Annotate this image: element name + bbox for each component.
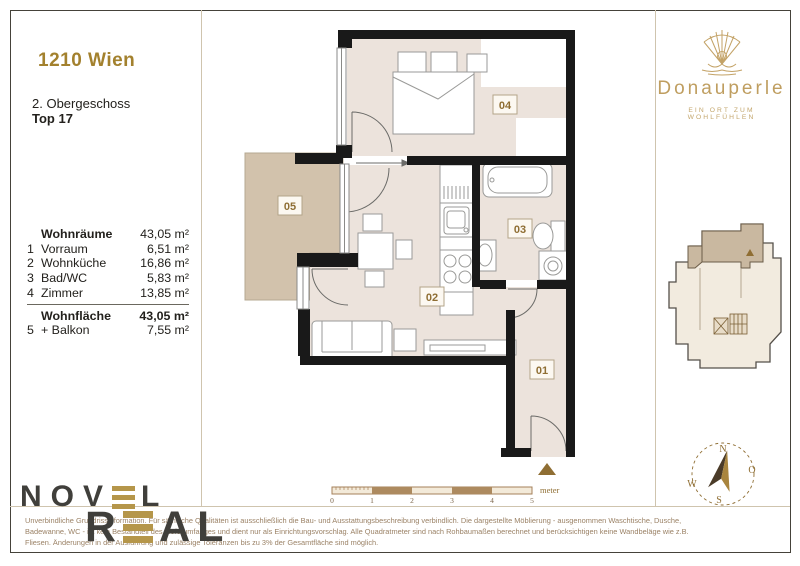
compass: N O S W — [685, 438, 765, 508]
floor-label: 2. Obergeschoss — [32, 96, 130, 111]
bed — [393, 72, 474, 134]
compass-west: W — [687, 479, 697, 490]
scale-unit-label: meter — [540, 485, 560, 495]
brand-tagline: EIN ORT ZUM WOHLFÜHLEN — [653, 107, 790, 121]
table-row: 1 Vorraum 6,51 m² — [27, 242, 189, 257]
table-row: 3 Bad/WC 5,83 m² — [27, 271, 189, 286]
site-plan — [662, 215, 788, 375]
dining-table — [358, 233, 393, 269]
table-row: 4 Zimmer 13,85 m² — [27, 286, 189, 301]
stove-burner — [444, 255, 456, 267]
shell-pearl-icon — [694, 26, 750, 76]
toilet — [533, 223, 553, 249]
compass-north: N — [719, 444, 726, 455]
location-title: 1210 Wien — [38, 50, 135, 72]
scale-tick: 2 — [410, 496, 414, 505]
table-row: Wohnräume 43,05 m² — [27, 227, 189, 242]
table-total-row: Wohnfläche 43,05 m² — [27, 309, 189, 324]
chair — [365, 271, 384, 287]
side-table — [394, 329, 416, 351]
logo-word2-start: R — [85, 503, 123, 552]
room-label-room: 04 — [499, 100, 512, 112]
room-label-hall: 01 — [536, 365, 548, 377]
compass-east: O — [748, 465, 755, 476]
stove-burner — [444, 271, 456, 283]
room-label-kitchen: 02 — [426, 292, 438, 304]
floor-plan: 01 02 03 04 05 — [205, 14, 650, 492]
group-value: 43,05 m² — [140, 227, 189, 242]
chair — [396, 240, 412, 259]
stove-burner — [459, 255, 471, 267]
scale-tick: 5 — [530, 496, 534, 505]
scale-tick: 4 — [490, 496, 494, 505]
faucet — [464, 228, 468, 232]
room-label-balcony: 05 — [284, 201, 296, 213]
pillow — [398, 52, 426, 72]
unit-highlight — [702, 224, 763, 268]
table-rule — [27, 304, 189, 305]
scale-bar: 0 1 2 3 4 5 meter — [325, 480, 570, 508]
logo-e-bars-icon — [123, 511, 153, 543]
entrance-arrow — [538, 463, 556, 475]
table-balcony-row: 5 + Balkon 7,55 m² — [27, 323, 189, 338]
chair — [363, 214, 382, 231]
left-panel-divider — [201, 10, 202, 506]
logo-word2-end: AL — [159, 503, 230, 552]
scale-tick: 1 — [370, 496, 374, 505]
stove-burner — [459, 271, 471, 283]
nightstand — [467, 54, 487, 72]
compass-south: S — [716, 495, 722, 506]
pillow — [431, 52, 457, 72]
group-label: Wohnräume — [41, 227, 140, 242]
floorplan-sheet: 1210 Wien 2. Obergeschoss Top 17 Wohnräu… — [0, 0, 800, 566]
brand-name: Donauperle — [653, 78, 790, 100]
unit-label: Top 17 — [32, 111, 73, 126]
novel-real-logo: NOV L R AL — [20, 483, 230, 547]
room-label-bath: 03 — [514, 224, 526, 236]
area-table: Wohnräume 43,05 m² 1 Vorraum 6,51 m² 2 W… — [27, 227, 189, 338]
table-row: 2 Wohnküche 16,86 m² — [27, 256, 189, 271]
scale-tick: 3 — [450, 496, 454, 505]
kitchen-vent — [444, 186, 468, 199]
scale-tick: 0 — [330, 496, 334, 505]
